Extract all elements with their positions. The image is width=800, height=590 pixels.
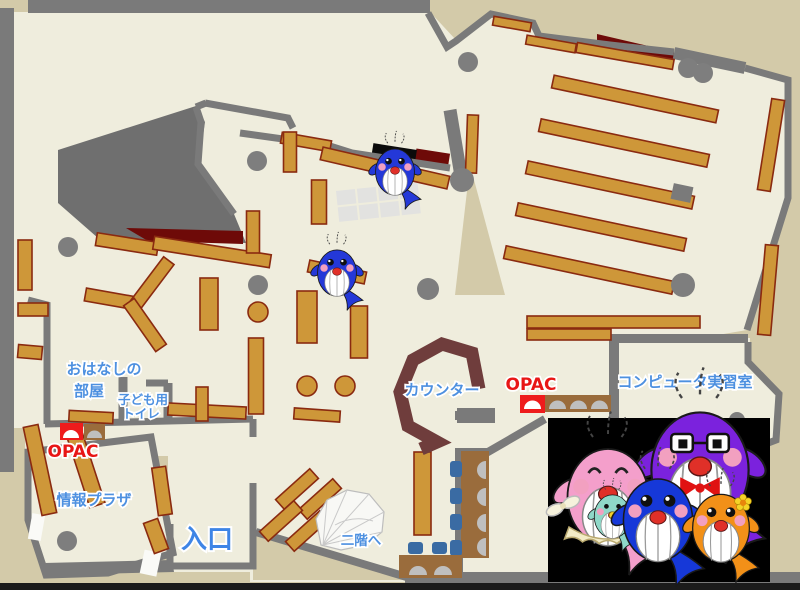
bookshelf [18, 303, 48, 316]
bookshelf [465, 115, 478, 173]
pillar [248, 275, 268, 295]
pillar [458, 52, 478, 72]
library-floor-map: おはなしの 部屋 子ども用 トイレ OPAC 情報プラザ 入口 カウンター OP… [0, 0, 800, 590]
bookshelf [284, 132, 297, 172]
pillar [247, 151, 267, 171]
bottom-black-strip [0, 583, 800, 590]
opac-station-right [520, 395, 611, 413]
label-info-plaza: 情報プラザ [56, 491, 131, 509]
wall-computer-top [612, 334, 748, 343]
pillar [58, 237, 78, 257]
return-desk [457, 408, 495, 423]
label-storytime-room-line2: 部屋 [74, 382, 104, 400]
bookshelf [196, 387, 208, 421]
pillar [417, 278, 439, 300]
bookshelf [200, 278, 218, 330]
bookshelf [312, 180, 327, 224]
pillar [57, 531, 77, 551]
label-to-second-floor: 二階へ [341, 532, 382, 549]
round-table [335, 376, 355, 396]
chair [450, 488, 462, 504]
chair [450, 514, 462, 530]
label-kids-toilet-line1: 子ども用 [118, 392, 168, 407]
bookshelf [527, 329, 611, 340]
bookshelf [351, 306, 368, 358]
round-table [248, 302, 268, 322]
round-table [297, 376, 317, 396]
label-storytime-room-line1: おはなしの [66, 360, 141, 378]
pillar [450, 168, 474, 192]
chair [450, 540, 462, 556]
label-kids-toilet-line2: トイレ [122, 406, 160, 421]
bookshelf [17, 344, 42, 359]
chair [432, 542, 447, 554]
label-opac-left: OPAC [48, 442, 99, 462]
bookshelf [297, 291, 317, 343]
pillar [671, 273, 695, 297]
bookshelf [18, 240, 32, 290]
chair [450, 461, 462, 477]
label-opac-right: OPAC [506, 375, 557, 395]
label-entrance: 入口 [181, 525, 233, 555]
bookshelf [249, 338, 264, 414]
chair [408, 542, 423, 554]
opac-station-left [60, 423, 105, 440]
bookshelf [247, 211, 260, 253]
bookshelf [69, 410, 114, 423]
pillar [693, 63, 713, 83]
wall-top [28, 0, 430, 13]
reading-table [399, 555, 462, 578]
wall-left [0, 8, 14, 472]
bookshelf [527, 316, 700, 328]
label-computer-room: コンピュータ実習室 [617, 373, 752, 391]
bookshelf [294, 408, 341, 422]
bookshelf [414, 452, 431, 535]
label-counter: カウンター [404, 381, 479, 399]
